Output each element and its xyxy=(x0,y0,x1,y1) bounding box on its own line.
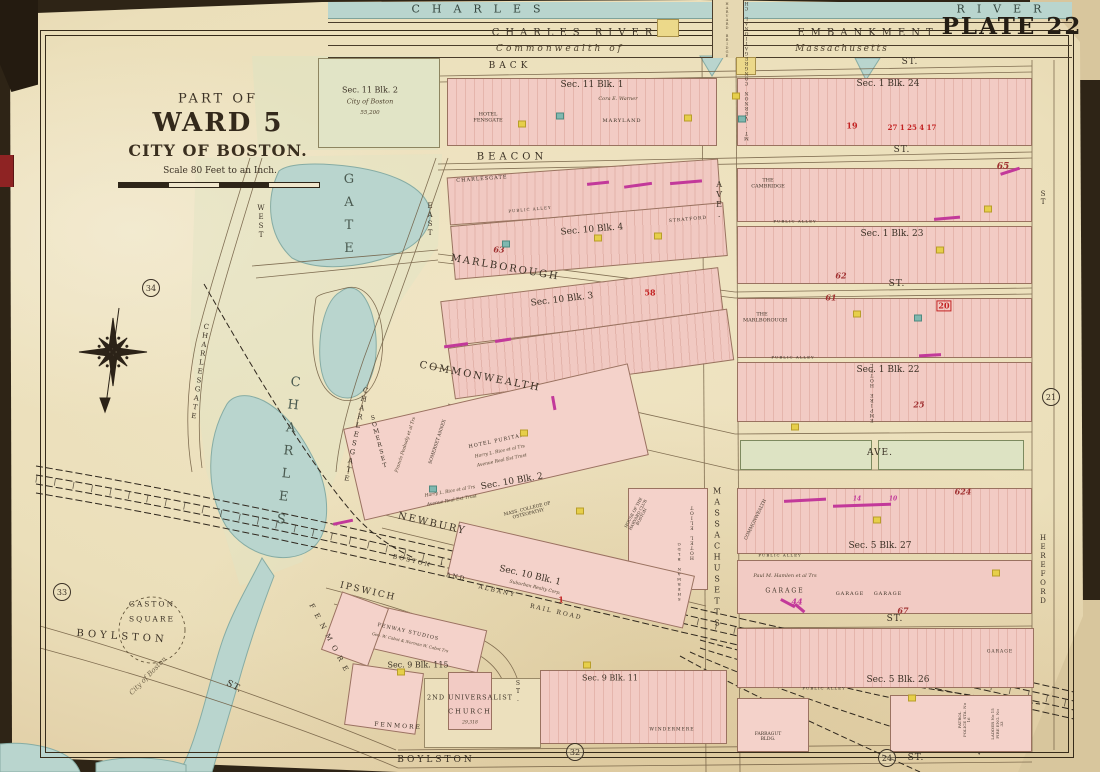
police-station-label: PATROL POLICE STA. No 16 xyxy=(958,703,972,737)
street-boylston-south: BOYLSTON xyxy=(397,755,475,765)
scale-bar xyxy=(118,182,320,188)
block-farragut xyxy=(737,698,809,752)
annotation-10: 10 xyxy=(889,497,897,504)
block-cambridge xyxy=(737,168,1032,222)
hotel-fensgate-label: HOTEL FENSGATE xyxy=(470,112,506,124)
bridge-abutment-yellow xyxy=(657,19,679,37)
garage-label-4: GARAGE xyxy=(987,649,1013,654)
plate-ref-33: 33 xyxy=(53,583,71,601)
gaston-square-gaston: GASTON xyxy=(129,601,175,610)
street-massachusetts-ave: AVE. xyxy=(714,180,723,220)
church-label: CHURCH xyxy=(448,708,492,715)
street-charlesgate-east: EAST xyxy=(426,202,434,238)
church-area-label: 29,318 xyxy=(462,720,478,725)
annotation-62: 62 xyxy=(835,271,846,280)
block-marlborough xyxy=(737,298,1032,358)
cora-warner-label: Cora E. Warner xyxy=(598,97,637,103)
annotation-58: 58 xyxy=(644,288,655,297)
embankment-embankment: EMBANKMENT xyxy=(797,27,938,39)
annotation-67: 67 xyxy=(897,606,908,615)
the-cambridge-label: THE CAMBRIDGE xyxy=(751,178,785,190)
sherman-bldg-label: SHERMAN BLDG xyxy=(678,542,683,602)
sec11-blk1-label: Sec. 11 Blk. 1 xyxy=(561,80,624,90)
street-massachusetts: MASSACHUSETTS xyxy=(712,487,721,630)
alley-sec5-blk27: PUBLIC ALLEY xyxy=(758,554,801,559)
annotation-65: 65 xyxy=(997,162,1010,172)
street-hereford: HEREFORD xyxy=(1039,534,1047,606)
maryland-label: MARYLAND xyxy=(603,119,642,125)
annotation-14: 14 xyxy=(853,497,861,504)
garage-label-2: GARAGE xyxy=(836,592,865,598)
street-beacon: BEACON xyxy=(477,151,547,163)
sec1-blk23-label: Sec. 1 Blk. 23 xyxy=(861,229,924,239)
city-of-boston-area: 55,200 xyxy=(360,110,379,116)
sec9-blk115-label: Sec. 9 Blk. 115 xyxy=(387,660,448,669)
street-marlborough-st: ST. xyxy=(889,279,906,289)
street-commonwealth-ave: AVE. xyxy=(867,448,893,458)
empire-hotel-label: EMPIRE HOTEL xyxy=(869,362,874,422)
embankment-band-line2 xyxy=(328,45,1072,58)
title-scale: Scale 80 Feet to an Inch. xyxy=(163,166,277,176)
annotation-61: 61 xyxy=(825,293,836,302)
garage-label-3: GARAGE xyxy=(874,592,903,598)
atlas-map-sheet: HARVARD BRIDGE CHARLES RIVER CHARLES RIV… xyxy=(0,0,1100,772)
annotation-20: 20 xyxy=(936,300,951,311)
annotation-27-seq: 27 1 25 4 17 xyxy=(888,124,937,132)
massachusetts-label: Massachusetts xyxy=(795,44,889,54)
annotation-63: 63 xyxy=(493,245,504,254)
street-charlesgate-west: WEST xyxy=(257,204,265,240)
commonwealth-mall-west xyxy=(740,440,872,470)
street-hereford-st: ST xyxy=(1039,190,1047,206)
the-marlborough-label: THE MARLBOROUGH xyxy=(743,312,781,324)
annotation-624: 624 xyxy=(955,487,972,496)
street-beacon-st: ST. xyxy=(894,145,911,155)
title-city: CITY OF BOSTON. xyxy=(128,142,307,160)
ladder-fire-label: LADDER No 15 FIRE ENG. No 33 xyxy=(991,707,1005,741)
river-name-charles: CHARLES xyxy=(411,4,552,17)
commonwealth-mall-east xyxy=(878,440,1024,470)
street-back: BACK xyxy=(489,61,532,71)
title-part-of: PART OF xyxy=(178,93,258,108)
street-back-st: ST. xyxy=(902,57,919,67)
plate-ref-24: 24 xyxy=(878,749,896,767)
hotel-eliot-label: HOTEL ELIOT xyxy=(689,505,694,560)
mt-vernon-church-label: MT. VERNON CONGREGATIONAL CHURCH xyxy=(744,80,770,140)
sec5-blk27-label: Sec. 5 Blk. 27 xyxy=(849,541,912,551)
harvard-bridge-label: HARVARD BRIDGE xyxy=(725,2,729,58)
garage-label-1: GARAGE xyxy=(765,589,804,596)
title-ward: WARD 5 xyxy=(152,109,283,139)
annotation-19: 19 xyxy=(846,121,857,130)
sec1-blk24-label: Sec. 1 Blk. 24 xyxy=(857,79,920,89)
plate-number: PLATE 22 xyxy=(942,14,1083,40)
sec11-blk2-label: Sec. 11 Blk. 2 xyxy=(342,85,398,94)
sec5-blk26-label: Sec. 5 Blk. 26 xyxy=(867,675,930,685)
windermere-label: WINDERMERE xyxy=(649,727,694,732)
city-of-boston-parcel: City of Boston xyxy=(347,98,394,105)
alley-sec1-blk22: PUBLIC ALLEY xyxy=(771,356,814,361)
universalist-label: 2ND UNIVERSALIST xyxy=(427,694,513,701)
annotation-1: 1 xyxy=(558,595,564,604)
plate-ref-21: 21 xyxy=(1042,388,1060,406)
hamlen-label: Paul M. Hamlen et al Trs xyxy=(753,574,816,580)
alley-sec5-blk26: PUBLIC ALLEY xyxy=(802,687,845,692)
farragut-label: FARRAGUT BLDG. xyxy=(751,732,785,742)
annotation-44: 44 xyxy=(791,597,802,606)
street-boylston-south-st: ST. xyxy=(908,753,925,763)
annotation-25: 25 xyxy=(913,400,924,409)
plate-ref-32: 32 xyxy=(566,743,584,761)
alley-sec1-blk23: PUBLIC ALLEY xyxy=(773,220,816,225)
park-gate-letters: GATE xyxy=(341,172,356,264)
sec1-blk22-label: Sec. 1 Blk. 22 xyxy=(857,365,920,375)
commonwealth-of-label: Commonwealth of xyxy=(496,44,624,54)
street-ipswich-st-vertical: ST. xyxy=(514,680,521,704)
sec9-blk11-label: Sec. 9 Blk. 11 xyxy=(582,673,638,682)
plate-ref-34: 34 xyxy=(142,279,160,297)
embankment-charles-river: CHARLES RIVER xyxy=(492,27,659,39)
gaston-square-square: SQUARE xyxy=(129,616,175,625)
